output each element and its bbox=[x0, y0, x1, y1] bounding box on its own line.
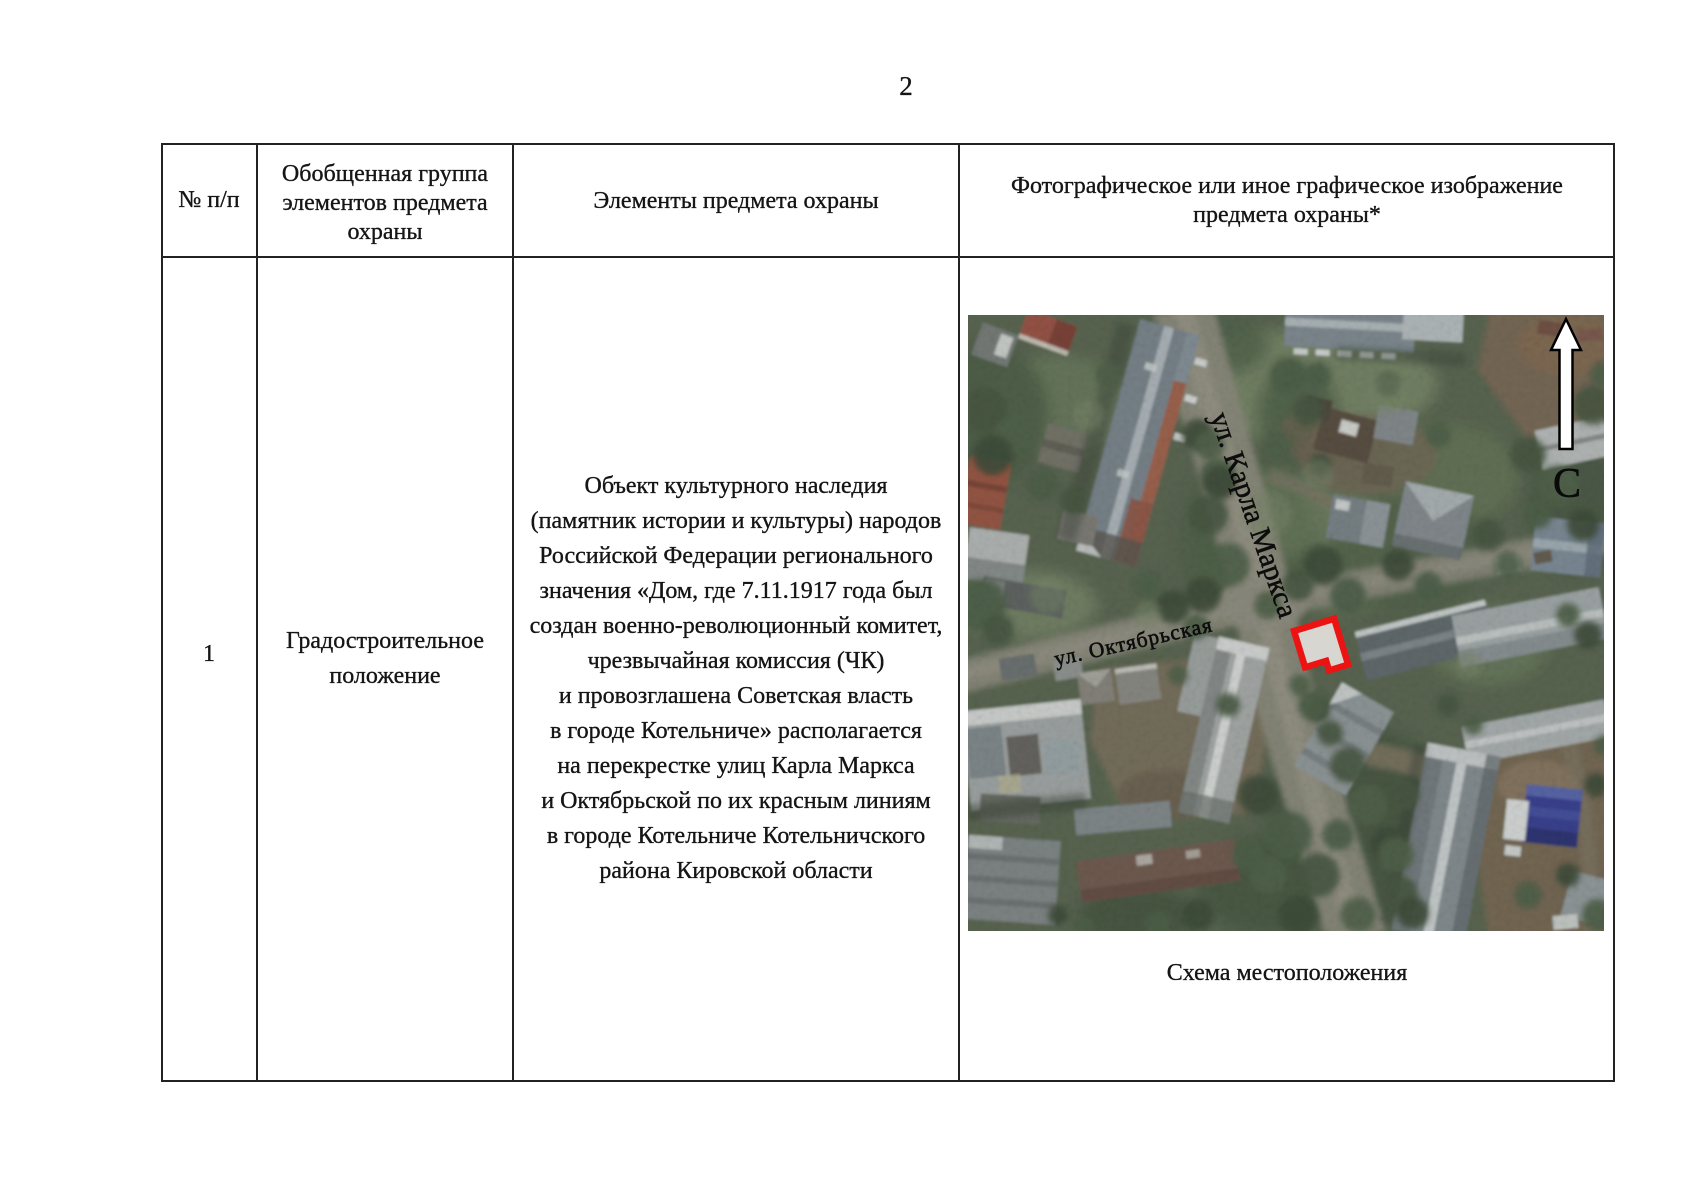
svg-text:С: С bbox=[1553, 461, 1581, 507]
